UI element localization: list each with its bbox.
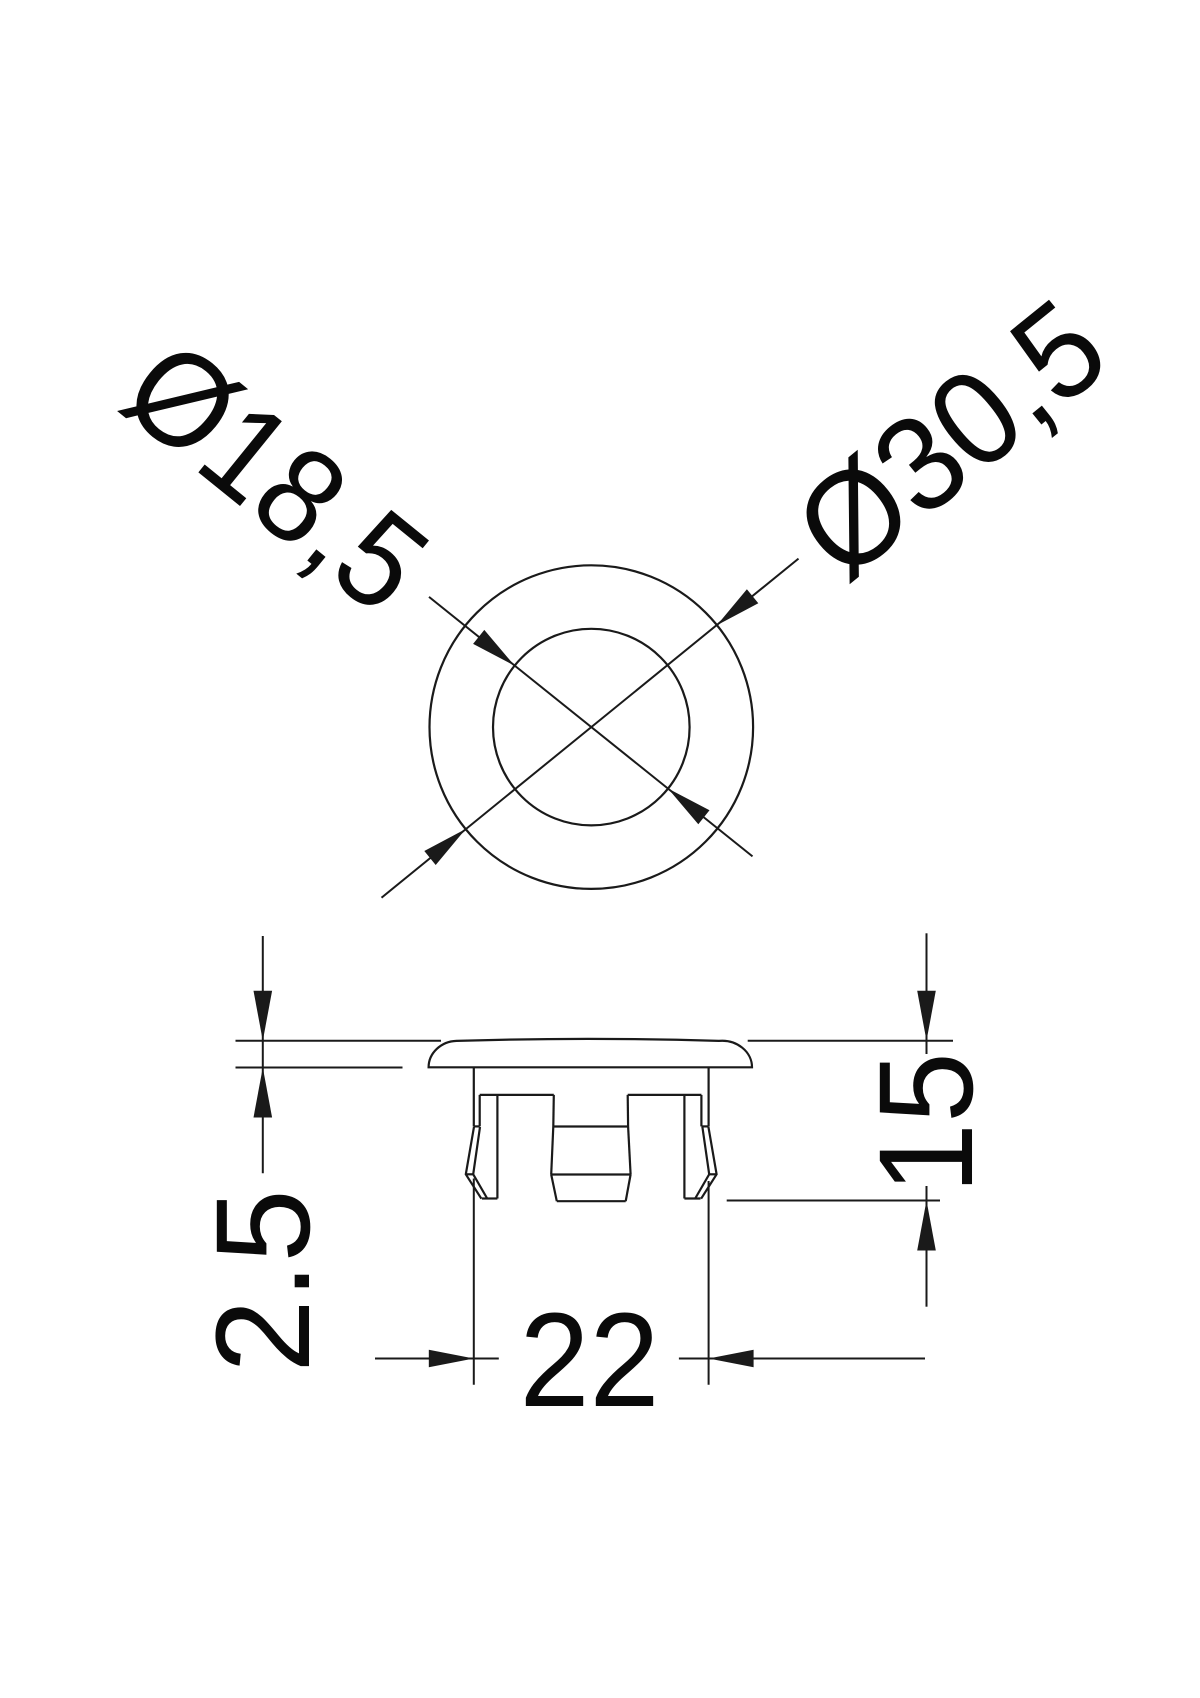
svg-text:Ø18,5: Ø18,5 <box>98 312 455 641</box>
svg-text:22: 22 <box>520 1284 660 1435</box>
svg-text:2.5: 2.5 <box>189 1189 338 1372</box>
svg-text:Ø30,5: Ø30,5 <box>767 270 1133 606</box>
svg-text:15: 15 <box>851 1052 1001 1194</box>
